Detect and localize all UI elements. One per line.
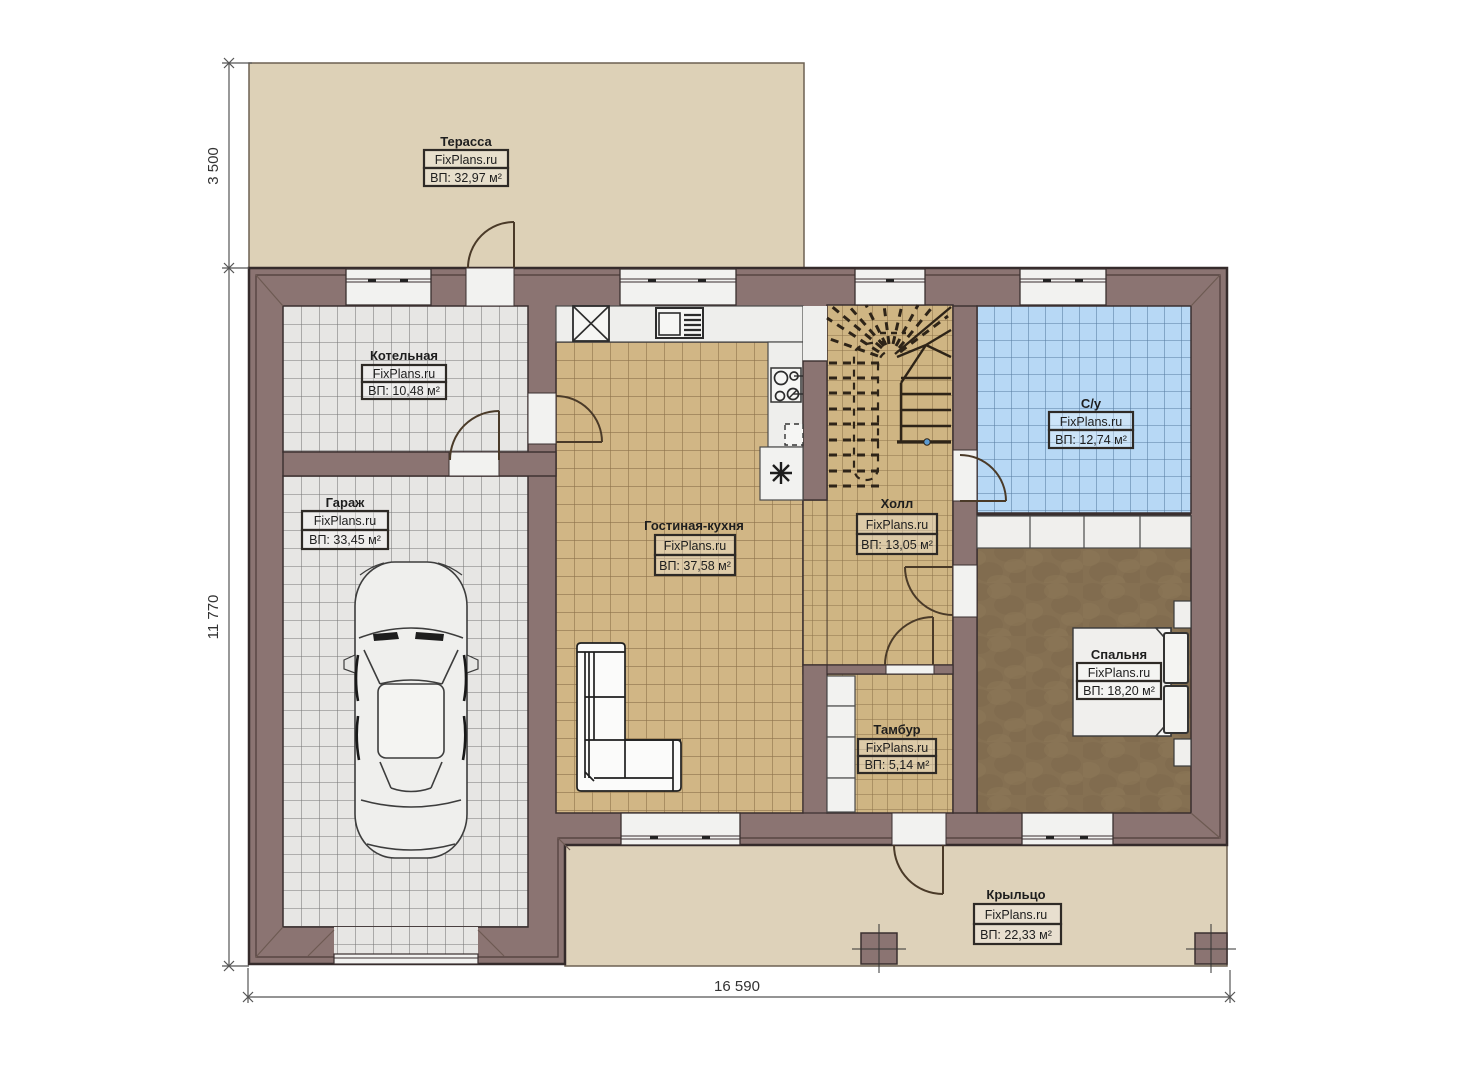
svg-text:FixPlans.ru: FixPlans.ru (985, 908, 1048, 922)
svg-text:Крыльцо: Крыльцо (986, 887, 1045, 902)
svg-text:FixPlans.ru: FixPlans.ru (1088, 666, 1151, 680)
svg-text:ВП: 32,97 м²: ВП: 32,97 м² (430, 171, 502, 185)
svg-text:FixPlans.ru: FixPlans.ru (866, 518, 929, 532)
svg-text:С/у: С/у (1081, 396, 1102, 411)
svg-text:Котельная: Котельная (370, 348, 438, 363)
svg-text:ВП: 5,14 м²: ВП: 5,14 м² (865, 758, 930, 772)
svg-text:FixPlans.ru: FixPlans.ru (664, 539, 727, 553)
svg-text:FixPlans.ru: FixPlans.ru (314, 514, 377, 528)
svg-text:16 590: 16 590 (714, 978, 760, 995)
svg-text:Гараж: Гараж (326, 495, 366, 510)
svg-text:Холл: Холл (881, 496, 914, 511)
svg-text:ВП: 22,33 м²: ВП: 22,33 м² (980, 928, 1052, 942)
svg-text:FixPlans.ru: FixPlans.ru (373, 367, 436, 381)
svg-text:ВП: 33,45 м²: ВП: 33,45 м² (309, 533, 381, 547)
svg-text:ВП: 12,74 м²: ВП: 12,74 м² (1055, 433, 1127, 447)
svg-text:Гостиная-кухня: Гостиная-кухня (644, 518, 744, 533)
svg-text:FixPlans.ru: FixPlans.ru (435, 153, 498, 167)
svg-text:11 770: 11 770 (205, 595, 222, 640)
svg-text:Спальня: Спальня (1091, 647, 1147, 662)
svg-text:3 500: 3 500 (205, 147, 222, 185)
svg-text:ВП: 13,05 м²: ВП: 13,05 м² (861, 538, 933, 552)
svg-text:Тамбур: Тамбур (873, 722, 920, 737)
svg-text:ВП: 37,58 м²: ВП: 37,58 м² (659, 559, 731, 573)
svg-text:ВП: 10,48 м²: ВП: 10,48 м² (368, 384, 440, 398)
svg-text:ВП: 18,20 м²: ВП: 18,20 м² (1083, 684, 1155, 698)
svg-text:FixPlans.ru: FixPlans.ru (866, 741, 929, 755)
svg-text:Терасса: Терасса (440, 134, 492, 149)
svg-text:FixPlans.ru: FixPlans.ru (1060, 415, 1123, 429)
